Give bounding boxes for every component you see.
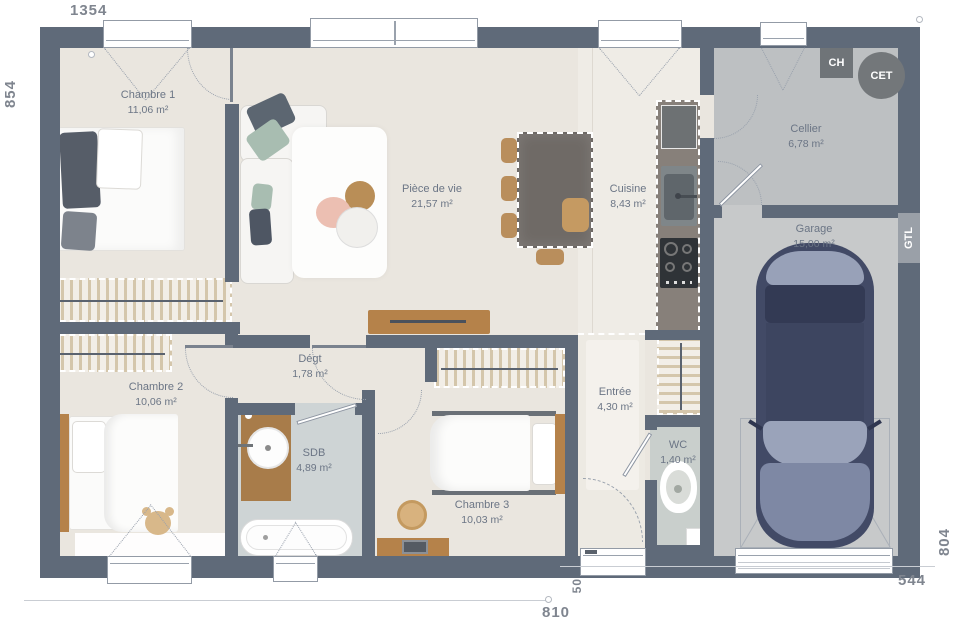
door-leaf-chambre1 bbox=[230, 48, 233, 102]
chambre2-bed-headboard bbox=[60, 414, 69, 532]
room-name: Chambre 2 bbox=[129, 380, 183, 395]
dining-chair bbox=[501, 213, 517, 238]
window-cuisine bbox=[598, 20, 682, 48]
room-name: Cuisine bbox=[610, 182, 647, 197]
room-area: 4,30 m² bbox=[597, 400, 633, 415]
wall-chambre1-bottom bbox=[60, 322, 240, 334]
chambre2-wardrobe bbox=[50, 334, 172, 372]
room-name: Garage bbox=[793, 222, 834, 237]
room-label-entree: Entrée 4,30 m² bbox=[597, 385, 633, 415]
room-name: SDB bbox=[296, 446, 332, 461]
room-area: 8,43 m² bbox=[610, 197, 647, 212]
chambre2-rug bbox=[75, 533, 225, 556]
car bbox=[756, 243, 874, 548]
wall-kitchen-entree bbox=[645, 330, 700, 340]
sofa-cushion-dark-small bbox=[249, 208, 272, 245]
toilet-drain bbox=[674, 485, 682, 493]
door-leaf-chambre2 bbox=[185, 345, 233, 348]
door-leaf-degt bbox=[312, 345, 366, 348]
dimension-line-bottom-right bbox=[560, 566, 935, 567]
wall-living-south bbox=[366, 335, 578, 348]
chambre1-white-pillow bbox=[96, 128, 143, 190]
dimension-entry-offset: 50 bbox=[570, 578, 584, 593]
window-cellier bbox=[760, 22, 807, 46]
entree-living-dashed-boundary bbox=[578, 333, 645, 335]
teddy-ear bbox=[165, 507, 174, 516]
room-area: 15,00 m² bbox=[793, 237, 834, 252]
wall-wc-top bbox=[645, 415, 700, 427]
room-area: 10,06 m² bbox=[129, 395, 183, 410]
room-label-wc: WC 1,40 m² bbox=[660, 438, 696, 468]
wall-chambre3-right bbox=[565, 335, 578, 556]
window-sdb bbox=[273, 556, 318, 582]
dimension-left-height: 854 bbox=[2, 80, 19, 108]
garage-door-line bbox=[738, 568, 890, 569]
entrance-door-handle bbox=[585, 550, 597, 554]
car-rear-window bbox=[765, 285, 865, 323]
chambre3-pillow bbox=[532, 423, 557, 485]
wall-cellier-garage bbox=[714, 205, 722, 218]
car-hood bbox=[760, 463, 870, 541]
chambre3-duvet bbox=[430, 415, 530, 491]
dimension-bottom-left-width: 810 bbox=[542, 604, 570, 621]
sideboard-handle bbox=[390, 320, 466, 323]
bathtub-inner bbox=[246, 525, 347, 550]
wall-chambre1-right bbox=[225, 104, 239, 282]
burner bbox=[665, 262, 675, 272]
room-label-garage: Garage 15,00 m² bbox=[793, 222, 834, 252]
wall-house-garage bbox=[700, 138, 714, 556]
dimension-marker bbox=[916, 16, 923, 23]
dimension-marker bbox=[88, 51, 95, 58]
window-chambre2 bbox=[107, 556, 192, 584]
room-area: 4,89 m² bbox=[296, 461, 332, 476]
room-label-degt: Dégt 1,78 m² bbox=[292, 352, 328, 382]
window-living bbox=[310, 18, 478, 48]
window-mullion bbox=[394, 21, 396, 45]
room-label-piece-de-vie: Pièce de vie 21,57 m² bbox=[402, 182, 462, 212]
room-name: Pièce de vie bbox=[402, 182, 462, 197]
chambre3-wardrobe bbox=[434, 348, 565, 388]
laptop bbox=[402, 540, 428, 554]
chambre1-throw bbox=[61, 211, 98, 251]
car-trunk bbox=[766, 251, 864, 285]
entree-closet bbox=[657, 338, 703, 415]
toilet bbox=[660, 461, 697, 513]
bathtub-drain bbox=[263, 535, 268, 540]
room-name: Chambre 3 bbox=[455, 498, 509, 513]
car-windshield bbox=[763, 421, 867, 465]
stove-knobs bbox=[666, 281, 692, 284]
car-roof bbox=[766, 323, 864, 423]
burner bbox=[682, 244, 692, 254]
dimension-marker bbox=[545, 596, 552, 603]
room-area: 1,78 m² bbox=[292, 367, 328, 382]
dimension-line-bottom-left bbox=[24, 600, 548, 601]
room-area: 6,78 m² bbox=[788, 137, 824, 152]
burner bbox=[682, 262, 692, 272]
dining-chair bbox=[501, 138, 517, 163]
wall-degt-sdb bbox=[355, 403, 367, 415]
desk-chair bbox=[397, 500, 427, 530]
wall-degt-sdb bbox=[238, 403, 295, 415]
sdb-sink-drain bbox=[265, 445, 271, 451]
fridge bbox=[661, 105, 697, 149]
room-label-sdb: SDB 4,89 m² bbox=[296, 446, 332, 476]
window-chambre1 bbox=[103, 20, 192, 48]
pouf-white bbox=[336, 207, 378, 248]
room-area: 10,03 m² bbox=[455, 513, 509, 528]
cutting-board bbox=[562, 198, 589, 232]
dimension-top-width: 1354 bbox=[70, 2, 107, 19]
room-name: WC bbox=[660, 438, 696, 453]
wall-wc-bottom bbox=[645, 545, 700, 556]
room-label-chambre3: Chambre 3 10,03 m² bbox=[455, 498, 509, 528]
garage-door-line bbox=[738, 562, 890, 563]
room-label-cellier: Cellier 6,78 m² bbox=[788, 122, 824, 152]
kitchen-drain bbox=[675, 193, 681, 199]
room-area: 11,06 m² bbox=[121, 103, 175, 118]
dimension-right-height: 804 bbox=[936, 528, 953, 556]
sofa-cushion-sage-small bbox=[251, 183, 274, 211]
room-name: Entrée bbox=[597, 385, 633, 400]
room-label-chambre1: Chambre 1 11,06 m² bbox=[121, 88, 175, 118]
dining-chair bbox=[536, 249, 564, 265]
wall-chambre3-stub bbox=[425, 348, 437, 382]
chambre2-pillow bbox=[72, 421, 106, 473]
room-label-cuisine: Cuisine 8,43 m² bbox=[610, 182, 647, 212]
wall-right bbox=[898, 27, 920, 578]
water-heater-badge-cet: CET bbox=[858, 52, 905, 99]
entrance-door bbox=[580, 548, 646, 576]
dimension-bottom-right-width: 544 bbox=[898, 572, 926, 589]
wall-chambre2-right bbox=[225, 398, 238, 556]
room-name: Chambre 1 bbox=[121, 88, 175, 103]
garage-door bbox=[735, 548, 893, 574]
room-area: 1,40 m² bbox=[660, 453, 696, 468]
chambre1-dark-pillow bbox=[59, 131, 101, 209]
sdb-faucet bbox=[237, 444, 253, 447]
wall-house-garage bbox=[700, 48, 714, 95]
room-name: Cellier bbox=[788, 122, 824, 137]
floor-plan: Chambre 1 11,06 m² Pièce de vie 21,57 m²… bbox=[0, 0, 960, 626]
wall-living-south bbox=[238, 335, 310, 348]
room-area: 21,57 m² bbox=[402, 197, 462, 212]
water-heater-badge-ch: CH bbox=[820, 48, 853, 78]
room-label-chambre2: Chambre 2 10,06 m² bbox=[129, 380, 183, 410]
room-name: Dégt bbox=[292, 352, 328, 367]
dining-chair bbox=[501, 176, 517, 201]
wall-left bbox=[40, 27, 60, 578]
electrical-panel-badge-gtl: GTL bbox=[898, 213, 920, 263]
wall-cellier-garage bbox=[762, 205, 898, 218]
chambre1-wardrobe bbox=[50, 278, 232, 322]
burner bbox=[664, 242, 678, 256]
